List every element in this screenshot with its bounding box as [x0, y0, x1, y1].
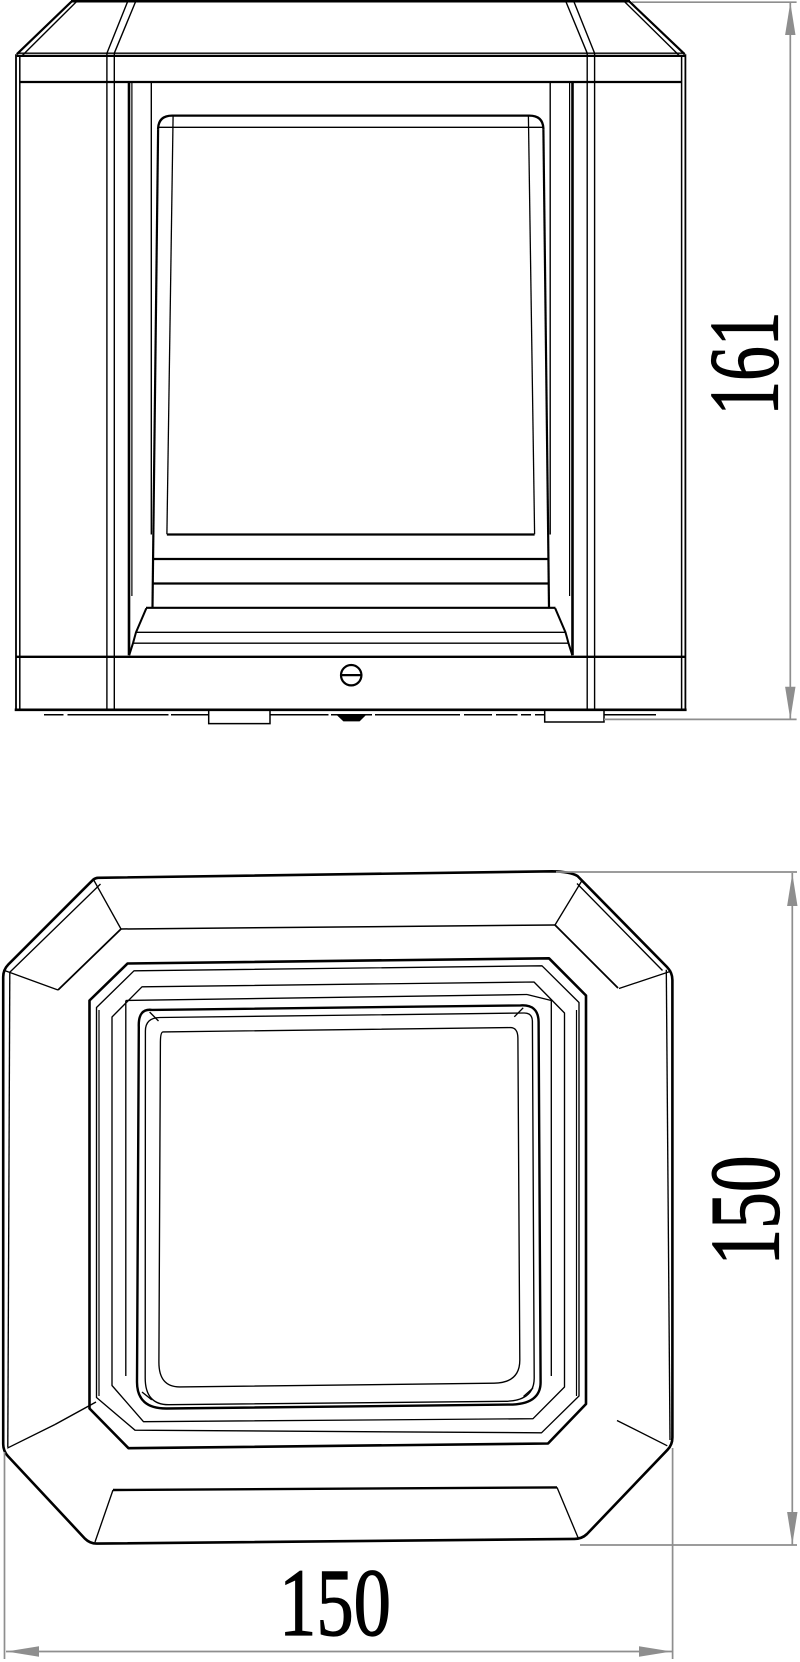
svg-text:150: 150 — [689, 1156, 800, 1266]
svg-text:150: 150 — [279, 1549, 391, 1656]
svg-text:161: 161 — [689, 312, 800, 416]
